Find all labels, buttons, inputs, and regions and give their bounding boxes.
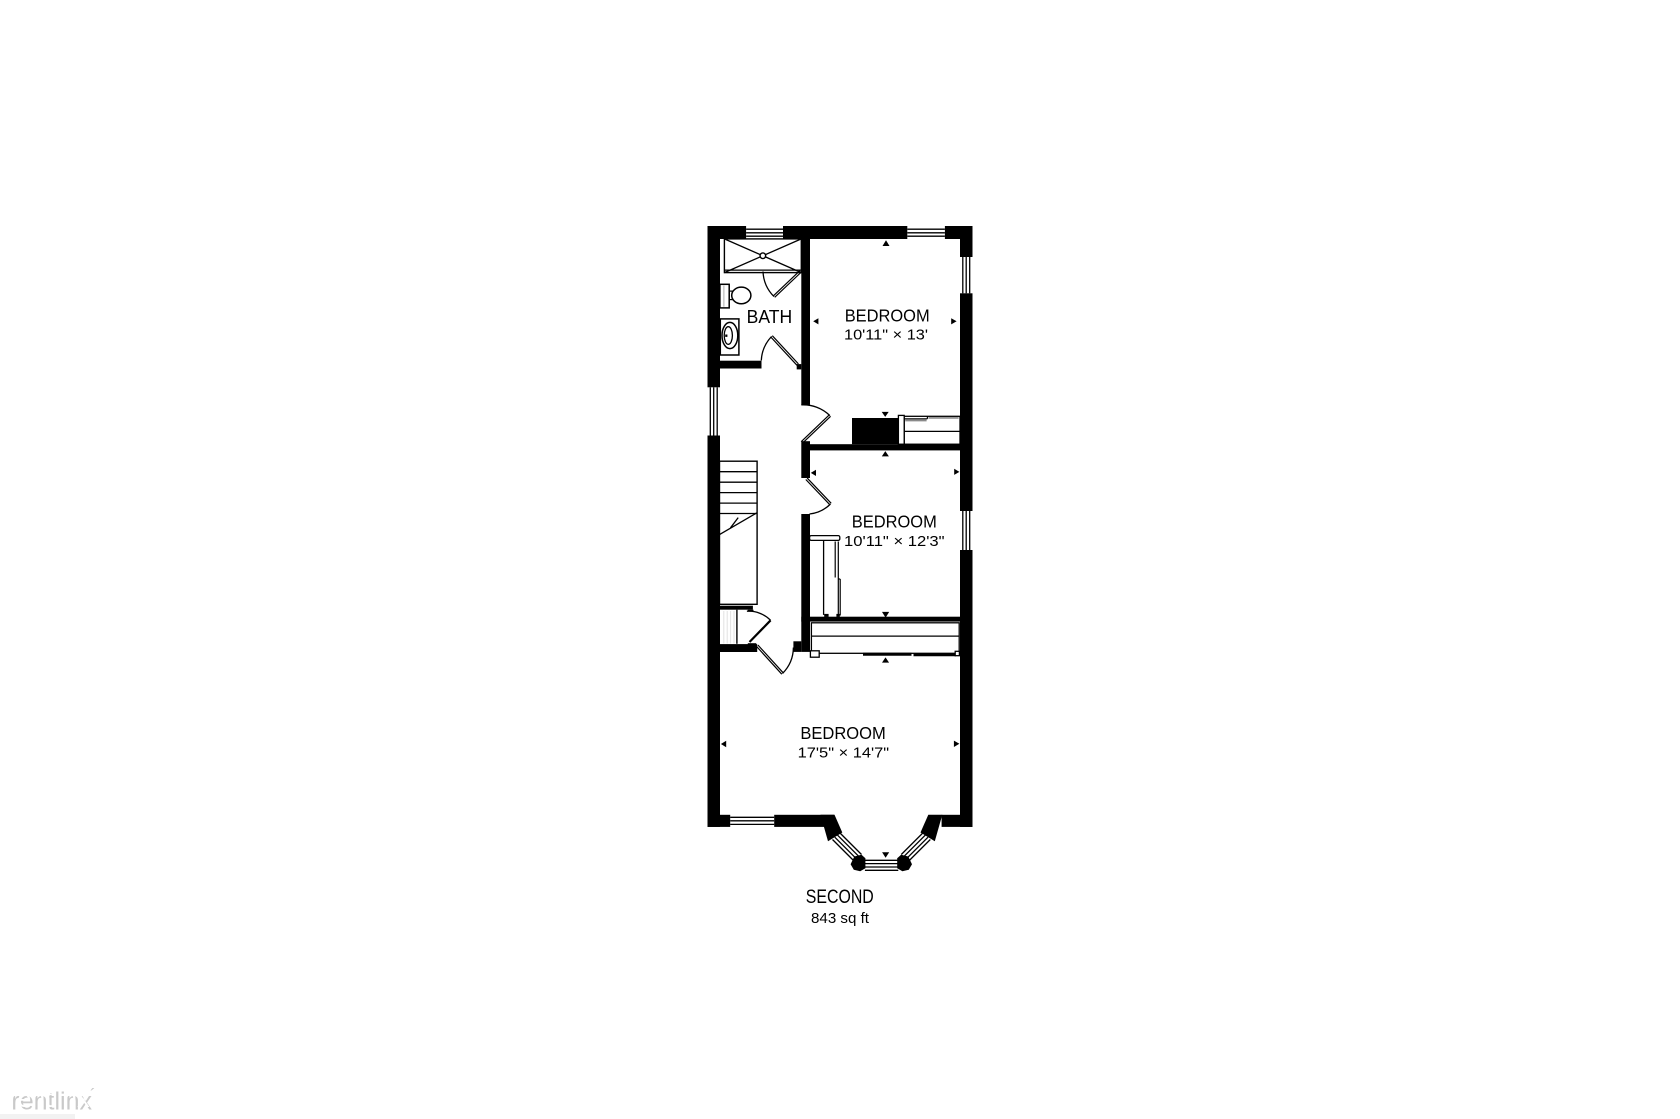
svg-text:10'11" × 13': 10'11" × 13': [844, 327, 928, 344]
svg-text:843 sq ft: 843 sq ft: [811, 910, 870, 927]
svg-text:BEDROOM: BEDROOM: [800, 723, 886, 743]
svg-text:17'5" × 14'7": 17'5" × 14'7": [798, 745, 890, 762]
svg-text:10'11" × 12'3": 10'11" × 12'3": [844, 533, 945, 550]
svg-text:BEDROOM: BEDROOM: [852, 511, 937, 531]
svg-text:BEDROOM: BEDROOM: [845, 306, 930, 326]
svg-text:BATH: BATH: [747, 307, 793, 327]
svg-text:SECOND: SECOND: [806, 886, 874, 908]
